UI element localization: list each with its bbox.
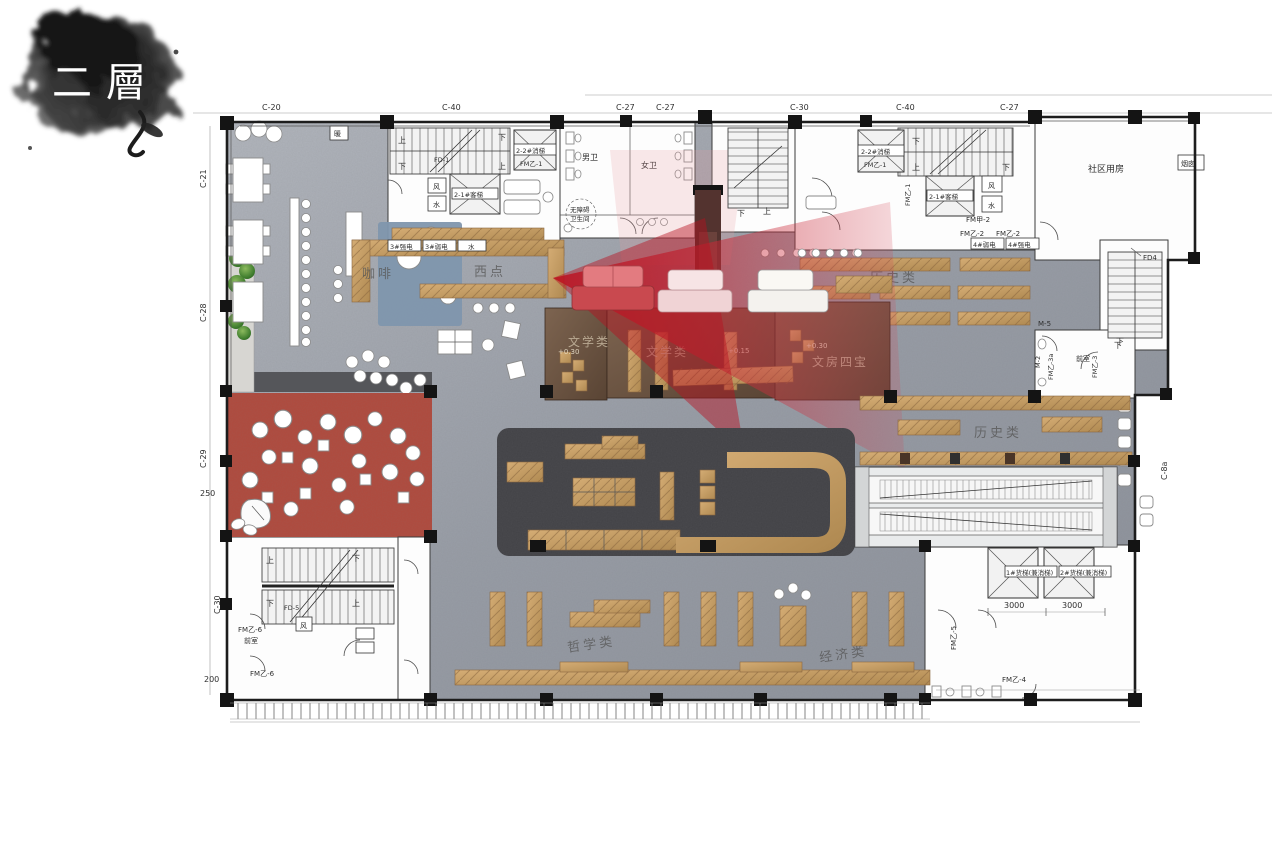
- zone-label-cafe: 咖啡: [362, 267, 394, 282]
- stair-down-label: 下: [352, 554, 360, 563]
- mech-heating-label: 暖: [334, 130, 341, 138]
- stair-bottomleft-lower: [262, 590, 394, 624]
- escalator-lane-2: [880, 512, 1092, 531]
- grid-label-top-4: C-27: [656, 103, 675, 112]
- stair-up-label: 上: [912, 163, 920, 172]
- grid-label-top-7: C-27: [1000, 103, 1019, 112]
- door-label-fmyi1-v: FM乙-1: [904, 184, 912, 206]
- grid-label-top-3: C-27: [616, 103, 635, 112]
- stair-up-label: 上: [498, 162, 506, 171]
- zone-label-community: 社区用房: [1088, 163, 1124, 175]
- grid-label-left-2: C-28: [199, 303, 208, 322]
- floor-title: 二層: [52, 60, 160, 106]
- mech-water-label: 水: [988, 201, 995, 210]
- dim-3000-b: 3000: [1062, 601, 1082, 610]
- mech-strong3-label: 3#强电: [390, 242, 413, 251]
- zone-label-history-2: 历史类: [974, 426, 1022, 441]
- stair-up-label: 上: [352, 599, 360, 608]
- lift-fire-label: 2-2#消梯: [516, 146, 546, 155]
- stair-down-label: 下: [266, 599, 274, 608]
- zone-label-pastry: 西点: [474, 265, 506, 280]
- dim-3000-a: 3000: [1004, 601, 1024, 610]
- piano: [241, 499, 271, 528]
- door-label-fd5: FD-5: [284, 604, 299, 612]
- ink-title-block: 二層: [26, 10, 178, 155]
- door-label-fmyi6: FM乙-6: [238, 626, 263, 634]
- grid-label-left-1: C-21: [199, 169, 208, 188]
- lift-fire-label: 2-2#消梯: [861, 147, 891, 156]
- stair-down-label: 下: [912, 137, 920, 146]
- mech-water-label: 水: [468, 242, 475, 251]
- stair-up-label: 上: [763, 207, 771, 216]
- cafe-table: [233, 282, 263, 322]
- door-label-fmyi2: FM乙-2: [996, 230, 1020, 238]
- door-label-m5: M-5: [1038, 320, 1051, 328]
- door-label-fmyi3a: FM乙-3a: [1047, 354, 1055, 380]
- room-label-mens-wc: 男卫: [582, 153, 598, 162]
- mech-water-label: 水: [433, 200, 440, 209]
- floor-plan-page: C-20 C-40 C-27 C-27 C-30 C-40 C-27 C-21 …: [0, 0, 1280, 841]
- mech-air-label: 风: [300, 622, 307, 630]
- lift-passenger-label: 2-1#客梯: [929, 192, 959, 201]
- mech-air-label: 风: [988, 182, 995, 190]
- door-label-fd1: FD-1: [434, 156, 449, 164]
- mech-air-label: 风: [433, 183, 440, 191]
- door-label-fd4: FD4: [1143, 254, 1157, 262]
- escalator: [855, 467, 1117, 547]
- door-label-fmyi2: FM乙-2: [960, 230, 984, 238]
- cafe-table: [233, 220, 263, 264]
- central-display-rug: [497, 428, 855, 556]
- dim-200: 200: [204, 675, 219, 684]
- stair-down-label: 下: [398, 162, 406, 171]
- grid-label-top-6: C-40: [896, 103, 915, 112]
- window-bar-counter: [290, 198, 299, 346]
- door-label-fmyi4: FM乙-4: [1002, 676, 1027, 684]
- door-label-fmyi6: FM乙-6: [250, 670, 275, 678]
- room-label-anteroom: 前室: [244, 636, 258, 645]
- dim-250: 250: [200, 489, 215, 498]
- door-label-fmyi5: FM乙-5: [950, 626, 958, 650]
- door-label-fmyi1: FM乙-1: [864, 161, 886, 169]
- cafe-table: [233, 158, 263, 202]
- stair-down-label: 下: [1002, 163, 1010, 172]
- grid-label-left-3: C-29: [199, 449, 208, 468]
- stair-down-label: 下: [737, 209, 745, 218]
- stair-up-label: 上: [266, 556, 274, 565]
- door-label-fmjia2: FM甲-2: [966, 216, 990, 224]
- room-label-accessible-wc: 卫生间: [570, 214, 590, 223]
- red-carpet-lounge: [228, 393, 432, 537]
- grid-label-top-2: C-40: [442, 103, 461, 112]
- stair-down-label: 下: [1116, 337, 1124, 346]
- zone-label-literature-1: 文学类: [568, 334, 610, 349]
- door-label-fmyi3: FM乙-3: [1091, 356, 1099, 378]
- grid-label-top-5: C-30: [790, 103, 809, 112]
- mech-chimney-label: 烟囱: [1181, 159, 1195, 168]
- lift-freight1-label: 1#货梯(兼消梯): [1006, 568, 1053, 577]
- level-label: +0.30: [558, 348, 579, 356]
- stair-down-label: 下: [498, 133, 506, 142]
- grid-label-right-2: C-8a: [1160, 461, 1169, 480]
- lift-passenger-label: 2-1#客梯: [454, 190, 484, 199]
- community-room-box: [1035, 117, 1195, 260]
- history-zone-right: 历史类: [860, 396, 1132, 465]
- lift-freight2-label: 2#货梯(兼消梯): [1060, 568, 1107, 577]
- floor-plan-drawing: C-20 C-40 C-27 C-27 C-30 C-40 C-27 C-21 …: [0, 0, 1280, 841]
- grid-label-top-1: C-20: [262, 103, 281, 112]
- mech-weak4-label: 4#弱电: [973, 240, 996, 249]
- door-label-m2: M-2: [1034, 356, 1042, 368]
- stair-up-label: 上: [398, 136, 406, 145]
- room-label-accessible-wc: 无障碍: [570, 205, 590, 214]
- door-label-fmyi1: FM乙-1: [520, 160, 542, 168]
- mech-weak3-label: 3#弱电: [425, 242, 448, 251]
- mech-strong4-label: 4#强电: [1008, 240, 1031, 249]
